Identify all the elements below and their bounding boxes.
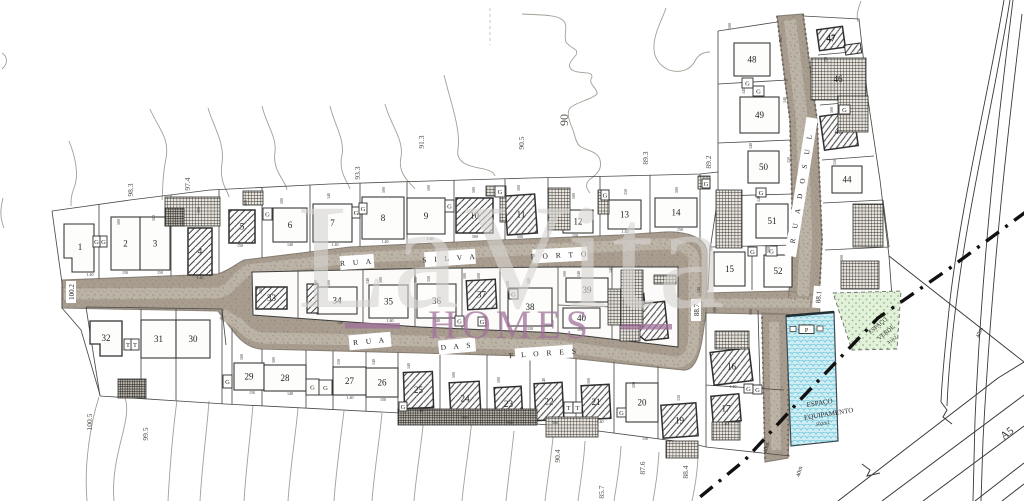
svg-text:150: 150 xyxy=(157,270,163,275)
svg-text:48: 48 xyxy=(748,55,758,65)
svg-text:49: 49 xyxy=(755,110,765,120)
svg-text:31: 31 xyxy=(154,334,163,344)
svg-text:G: G xyxy=(759,190,764,197)
svg-text:23: 23 xyxy=(504,399,514,409)
svg-text:G: G xyxy=(94,239,99,246)
svg-text:150: 150 xyxy=(676,395,681,401)
svg-text:90: 90 xyxy=(557,114,571,126)
svg-text:50: 50 xyxy=(759,162,769,172)
svg-text:19: 19 xyxy=(675,416,685,426)
svg-text:G: G xyxy=(842,107,847,114)
svg-text:G: G xyxy=(401,404,406,411)
svg-text:500: 500 xyxy=(839,255,844,261)
svg-text:89.2: 89.2 xyxy=(704,155,713,168)
svg-text:150: 150 xyxy=(778,37,783,43)
svg-text:22: 22 xyxy=(545,397,554,407)
svg-text:150: 150 xyxy=(237,243,243,248)
svg-text:100.2: 100.2 xyxy=(68,284,76,300)
svg-text:T: T xyxy=(567,405,571,412)
svg-text:140: 140 xyxy=(406,363,411,369)
svg-text:500: 500 xyxy=(766,247,771,253)
svg-text:G: G xyxy=(101,239,106,246)
svg-text:89.3: 89.3 xyxy=(641,151,650,164)
svg-text:1.40: 1.40 xyxy=(597,419,604,424)
svg-text:G: G xyxy=(310,385,315,392)
svg-text:500: 500 xyxy=(727,23,732,29)
svg-text:27: 27 xyxy=(345,376,355,386)
svg-text:140: 140 xyxy=(741,88,746,94)
svg-text:26: 26 xyxy=(378,378,388,388)
svg-text:G: G xyxy=(323,385,328,392)
svg-text:90.5: 90.5 xyxy=(517,136,526,149)
svg-text:1: 1 xyxy=(78,242,83,252)
svg-text:G: G xyxy=(750,249,755,256)
svg-text:32: 32 xyxy=(102,333,111,343)
svg-text:500: 500 xyxy=(496,377,501,383)
svg-text:90.4: 90.4 xyxy=(553,449,562,462)
svg-text:150: 150 xyxy=(122,270,128,275)
svg-text:500: 500 xyxy=(239,354,244,360)
svg-text:G: G xyxy=(745,81,750,88)
svg-text:91.3: 91.3 xyxy=(417,135,426,148)
svg-text:33: 33 xyxy=(267,293,277,303)
svg-text:1.40: 1.40 xyxy=(347,395,354,400)
svg-text:29: 29 xyxy=(245,372,255,382)
svg-text:98.3: 98.3 xyxy=(126,183,135,196)
svg-text:140: 140 xyxy=(782,97,787,103)
svg-text:500: 500 xyxy=(829,107,834,113)
svg-text:500: 500 xyxy=(243,200,248,206)
svg-text:500: 500 xyxy=(116,219,121,225)
svg-text:T: T xyxy=(576,405,580,412)
svg-text:150: 150 xyxy=(823,57,828,63)
svg-text:500: 500 xyxy=(258,288,263,294)
svg-text:500: 500 xyxy=(586,378,591,384)
svg-text:24: 24 xyxy=(461,394,471,404)
svg-text:3: 3 xyxy=(153,239,158,249)
svg-text:500: 500 xyxy=(462,415,468,420)
svg-text:25: 25 xyxy=(414,385,424,395)
svg-text:G: G xyxy=(756,89,761,96)
svg-text:500: 500 xyxy=(196,207,201,213)
svg-text:500: 500 xyxy=(151,215,156,221)
svg-text:150: 150 xyxy=(642,436,648,441)
svg-text:150: 150 xyxy=(249,390,255,395)
svg-text:G: G xyxy=(746,386,751,393)
svg-text:51: 51 xyxy=(768,216,777,226)
svg-text:1.40: 1.40 xyxy=(87,272,94,277)
svg-text:52: 52 xyxy=(774,266,783,276)
svg-text:2: 2 xyxy=(123,239,128,249)
svg-text:1.40: 1.40 xyxy=(417,408,424,413)
svg-text:150: 150 xyxy=(336,359,341,365)
svg-text:88.4: 88.4 xyxy=(681,465,690,478)
svg-text:4: 4 xyxy=(198,247,203,257)
svg-text:140: 140 xyxy=(371,359,376,365)
svg-text:500: 500 xyxy=(748,309,753,315)
svg-text:46: 46 xyxy=(834,74,844,84)
svg-text:100.5: 100.5 xyxy=(85,413,94,430)
svg-text:500: 500 xyxy=(631,382,636,388)
svg-text:150: 150 xyxy=(786,157,791,163)
svg-text:G: G xyxy=(755,387,760,394)
svg-text:T: T xyxy=(126,342,130,349)
svg-text:5: 5 xyxy=(240,222,245,232)
svg-text:140: 140 xyxy=(287,391,293,396)
svg-text:140: 140 xyxy=(541,378,546,384)
svg-text:6: 6 xyxy=(288,220,293,230)
svg-text:85.7: 85.7 xyxy=(597,485,606,498)
svg-text:G: G xyxy=(265,212,270,219)
svg-text:30: 30 xyxy=(189,334,199,344)
svg-text:G: G xyxy=(225,379,230,386)
svg-text:1.40: 1.40 xyxy=(197,275,204,280)
svg-text:1.40: 1.40 xyxy=(722,421,729,426)
svg-text:500: 500 xyxy=(279,198,284,204)
svg-text:500: 500 xyxy=(507,420,513,425)
svg-text:1.40: 1.40 xyxy=(730,384,737,389)
svg-text:150: 150 xyxy=(380,397,386,402)
svg-text:99.5: 99.5 xyxy=(141,427,150,440)
svg-text:HOMES: HOMES xyxy=(428,302,593,347)
svg-text:47: 47 xyxy=(827,33,837,43)
svg-text:28: 28 xyxy=(281,373,291,383)
svg-text:500: 500 xyxy=(271,357,276,363)
svg-text:140: 140 xyxy=(756,196,761,202)
svg-text:21: 21 xyxy=(592,397,601,407)
svg-text:20: 20 xyxy=(638,398,648,408)
svg-text:87.6: 87.6 xyxy=(638,461,647,474)
svg-text:17: 17 xyxy=(722,404,732,414)
svg-text:88.1: 88.1 xyxy=(814,290,823,303)
svg-text:44: 44 xyxy=(843,175,853,185)
svg-text:97.4: 97.4 xyxy=(183,177,192,190)
svg-text:T: T xyxy=(133,342,137,349)
svg-text:500: 500 xyxy=(552,420,558,425)
svg-text:140: 140 xyxy=(287,242,293,247)
svg-text:500: 500 xyxy=(451,372,456,378)
svg-text:150: 150 xyxy=(832,159,837,165)
svg-text:140: 140 xyxy=(748,143,753,149)
svg-text:16: 16 xyxy=(727,362,737,372)
svg-text:G: G xyxy=(619,410,624,417)
